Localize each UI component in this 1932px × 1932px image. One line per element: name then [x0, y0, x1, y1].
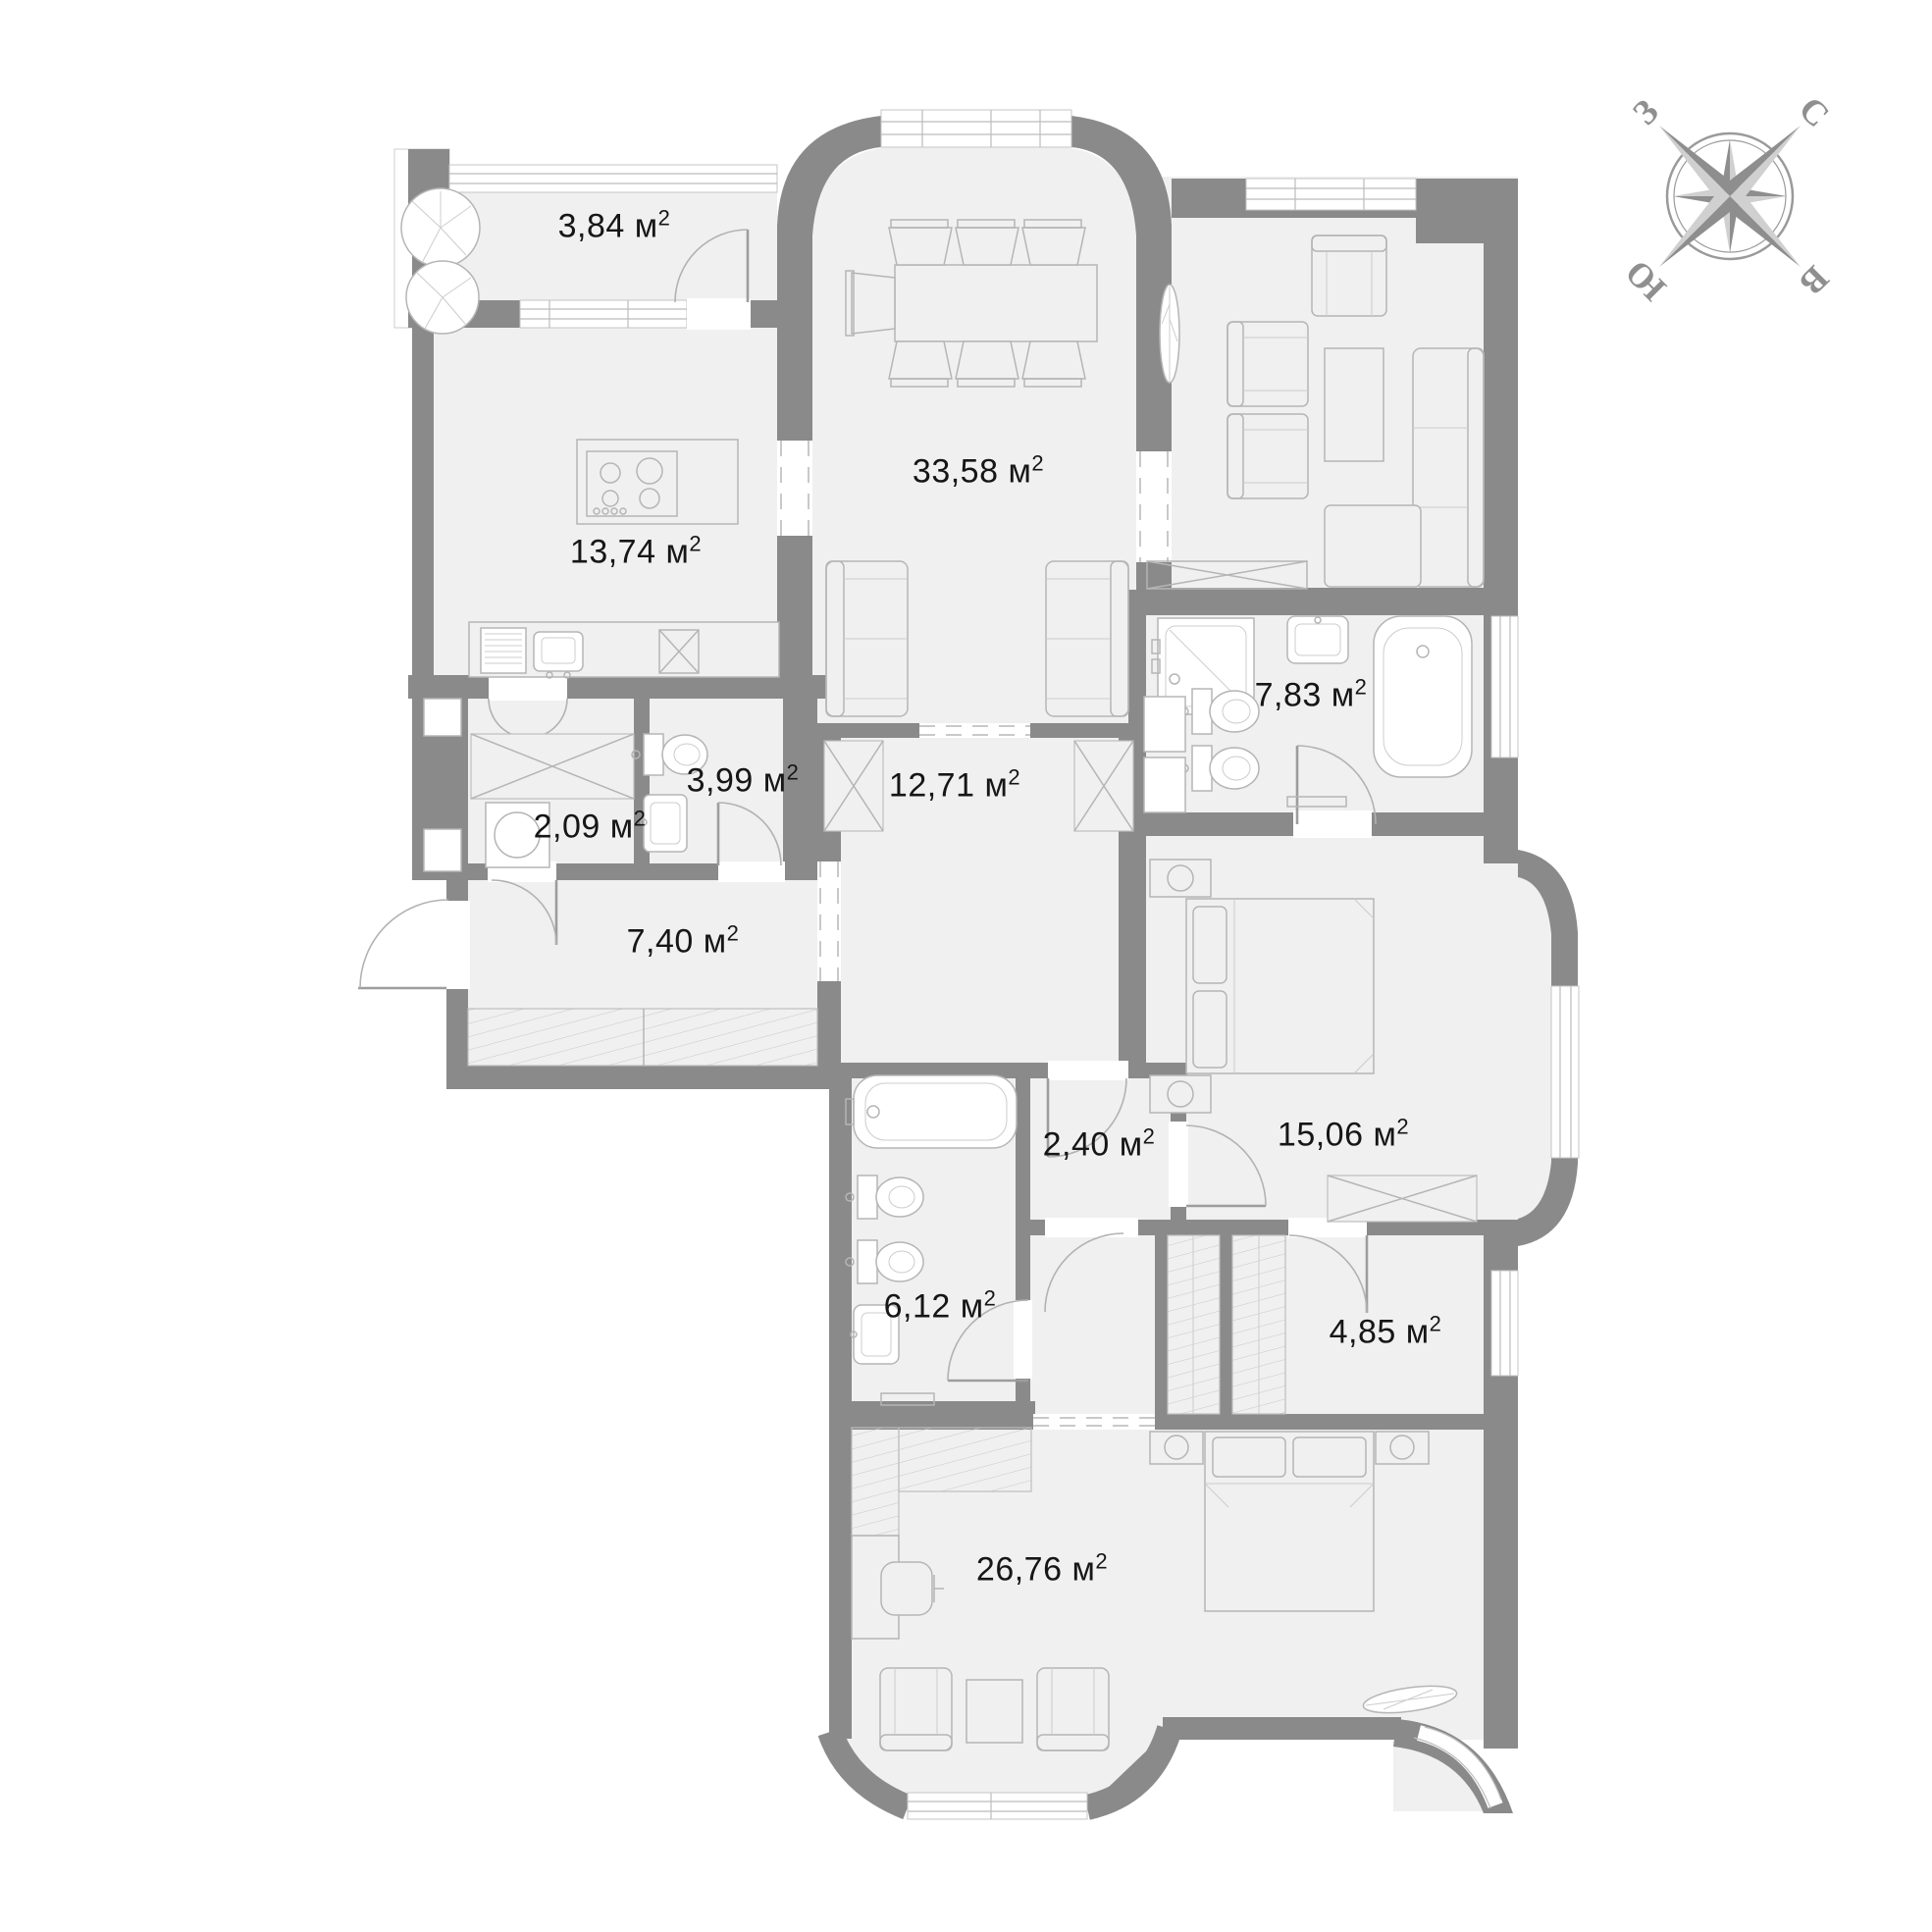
kitchen-island: [577, 440, 738, 524]
balcony-inner-window: [520, 300, 687, 328]
room-area-label-bathroom-2: 6,12 м2: [884, 1285, 997, 1326]
wardrobe-x: [1328, 1175, 1477, 1222]
bathtub: [1374, 616, 1472, 777]
room-area-label-balcony: 3,84 м2: [558, 205, 671, 245]
closet: [1168, 1235, 1220, 1414]
room-area-label-bedroom-2: 26,76 м2: [976, 1548, 1108, 1589]
room-area-label-bathroom-main: 7,83 м2: [1255, 674, 1368, 714]
room-area-label-wc: 3,99 м2: [687, 759, 800, 800]
room-area-label-dining-living: 33,58 м2: [913, 450, 1044, 491]
room-area-label-bedroom-1: 15,06 м2: [1278, 1114, 1409, 1154]
room-area-label-laundry: 2,09 м2: [534, 806, 647, 846]
room-area-label-entry-hall: 7,40 м2: [627, 920, 740, 961]
hall-wardrobe: [824, 741, 883, 831]
room-area-label-hallway: 12,71 м2: [889, 764, 1020, 805]
room-area-label-wardrobe-room: 4,85 м2: [1330, 1311, 1442, 1351]
entry-door: [358, 900, 470, 989]
bay-window: [1551, 986, 1579, 1158]
closet: [1232, 1235, 1285, 1414]
floor-plan-page: 3,84 м213,74 м233,58 м27,83 м23,99 м22,0…: [0, 0, 1932, 1932]
compass-rose: [1659, 126, 1801, 267]
bed: [1205, 1432, 1374, 1611]
toilet: [846, 1175, 923, 1219]
hall-wardrobe: [1074, 741, 1133, 831]
sink: [641, 795, 687, 852]
wardrobe-window: [1491, 1271, 1518, 1376]
sink: [1287, 616, 1348, 663]
dining-bay-window: [881, 110, 1071, 147]
living-window: [1246, 179, 1416, 210]
room-area-label-kitchen: 13,74 м2: [570, 531, 702, 571]
bed: [1186, 899, 1374, 1073]
bottom-bay-window: [908, 1793, 1087, 1819]
room-area-label-pass-room: 2,40 м2: [1043, 1123, 1156, 1164]
balcony-window: [449, 165, 777, 192]
plant-icon: [401, 188, 480, 267]
toilet: [1180, 689, 1259, 734]
plant-icon: [406, 261, 479, 334]
entry-wardrobe: [468, 1009, 817, 1066]
kitchen-counter: [469, 622, 779, 678]
bidet: [1180, 746, 1259, 791]
armchair: [880, 1668, 952, 1750]
bidet: [846, 1240, 923, 1283]
bathroom-window: [1491, 616, 1518, 757]
armchair: [1037, 1668, 1109, 1750]
bathtub: [846, 1075, 1017, 1148]
